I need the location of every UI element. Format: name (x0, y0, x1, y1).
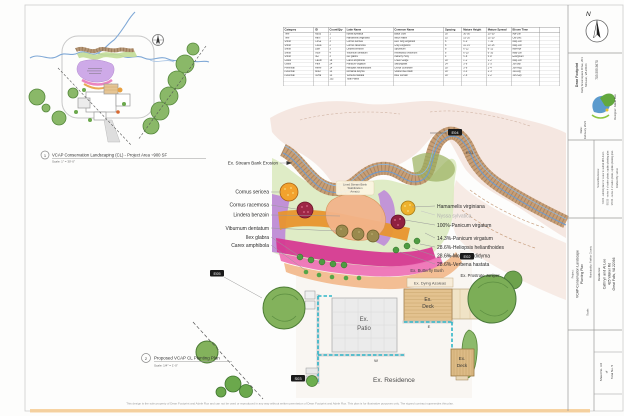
lower-deck-label-line1: Ex. (459, 356, 466, 361)
inset-house (78, 84, 130, 142)
upper-deck-label-line1: Ex. (424, 297, 431, 303)
residence-label: Ex. Residence (373, 377, 415, 384)
client-block: Residence: Cathryn and Al Lee 425 Walker… (597, 257, 616, 290)
north-label: N (586, 11, 591, 18)
company-address2: McLean, VA 22101 (584, 63, 588, 87)
patio-label-line2: Patio (357, 326, 371, 332)
sheet-number-block: Sheet No. 3.0 of Total No. 5 (599, 363, 614, 382)
project-block: Project: VCAP-Conservation Landscape Pla… (571, 245, 593, 316)
label-verbena: 28.6%-Verbena hastata (437, 262, 489, 268)
butterfly-bush-label: Ex. Butterfly Bush (410, 268, 444, 273)
label-ilex-glabra: Ilex glabra (246, 235, 269, 241)
north-arrow-icon: N (586, 11, 608, 42)
project-name-line2: Planting Plan (580, 264, 584, 284)
drafted-by: Drafted By: will.st (615, 168, 619, 188)
label-cornus-racemosa: Cornus racemosa (230, 203, 270, 209)
shrub-symbol-yellow (401, 201, 415, 215)
main-caption-scale: Scale: 1/4" = 1'-0" (154, 364, 178, 368)
inset-north-icon (153, 35, 164, 46)
inset-caption-number: 1 (44, 153, 47, 158)
plant-schedule: CategoryIDCount/QtyLatin NameCommon Name… (283, 27, 560, 86)
inset-caption: 1 VCAP Conservation Landscaping (CL) - P… (41, 151, 206, 164)
label-carex-amphibola: Carex amphibola (231, 243, 269, 249)
sheet-number-line1: Sheet No. 3.0 (599, 363, 603, 382)
inset-plan: 1 VCAP Conservation Landscaping (CL) - P… (29, 12, 209, 164)
inset-planting-area (76, 49, 136, 89)
schedule-cell (539, 85, 559, 86)
existing-trees (196, 287, 305, 398)
label-hamamelis: Hamamelis virginiana (437, 204, 485, 210)
company-logo-icon (592, 94, 615, 119)
shrub-symbol-orange (280, 183, 298, 201)
tag-e03: E03 (466, 150, 474, 155)
wall-letter-e: E (428, 324, 431, 329)
label-cornus-sericea: Cornus sericea (235, 190, 269, 196)
label-lindera-benzoin: Lindera benzoin (233, 213, 269, 219)
patio-label-line1: Ex. (360, 317, 369, 323)
tag-e05: E05 (213, 271, 221, 276)
dying-azaleas-label: Ex. Dying Azaleas (414, 281, 446, 286)
schedule-cell (462, 85, 487, 86)
inset-caption-title: VCAP Conservation Landscaping (CL) - Pro… (52, 153, 167, 158)
plant-labels-left: Ex. Stream Bank Erosion Cornus sericea C… (225, 161, 278, 250)
lower-deck: Ex. Deck (451, 349, 474, 380)
schedule-cell (328, 85, 345, 86)
project-heading: Project: (571, 269, 575, 278)
footer-disclaimer: This design is the sole property of Dean… (126, 402, 454, 406)
upper-deck-label-line2: Deck (422, 304, 434, 310)
revisions-block: Notes/Revisions: 7/2/20 - submit plans f… (596, 150, 619, 205)
project-municipality: Municipality: Fairfax County (589, 245, 593, 278)
main-caption-number: 2 (145, 356, 148, 361)
schedule-cell (487, 85, 512, 86)
shrub-symbol-maroon-2 (391, 215, 405, 229)
label-nyssa: Nyssa sylvatica (437, 214, 472, 220)
schedule-cell (444, 85, 462, 86)
project-scale-label: Scale: (586, 308, 590, 316)
drawing-sheet: 1 VCAP Conservation Landscaping (CL) - P… (0, 0, 624, 416)
schedule-cell (314, 85, 328, 86)
tag-s03: S03 (294, 376, 302, 381)
sheet-number-line3: Total No. 5 (610, 364, 614, 379)
schedule-cell (393, 85, 444, 86)
project-name-line1: VCAP-Conservation Landscape (576, 250, 580, 298)
patio: Ex. Patio (332, 298, 397, 352)
company-name: Dean Footprint (575, 62, 579, 87)
label-heliopsis: 28.6%-Heliopsis helianthoides (437, 245, 504, 251)
tag-e02: E02 (463, 254, 471, 259)
revision-item-1: 7/2/20 - submit plans for owner to submi… (602, 152, 605, 205)
title-block: N Dean Footprint Kelly Greenspace Drive,… (568, 5, 622, 411)
plant-schedule-table: CategoryIDCount/QtyLatin NameCommon Name… (283, 27, 560, 86)
revision-item-3: 9/5/20 - revise # of native plants, upda… (611, 150, 614, 205)
client-address1: 425 Walker Rd (608, 263, 612, 285)
schedule-cell (511, 85, 539, 86)
company-block: Dean Footprint Kelly Greenspace Drive, 2… (575, 57, 617, 139)
company-designer: Designer: Adele Rux (613, 94, 617, 120)
client-heading: Residence: (597, 267, 601, 281)
inset-caption-scale: Scale: 1" = 30'-0" (52, 160, 75, 164)
stream-note-line3: Area(s) (350, 190, 359, 194)
revision-item-2: 8/5/20 - revise # of native plants, upda… (607, 150, 610, 205)
client-address2: Great Falls, VA 22066 (612, 257, 616, 290)
label-panicum-14: 14.3%-Panicum virgatum (437, 236, 493, 242)
client-name: Cathryn and Al Lee (603, 259, 607, 290)
label-viburnum-dentatum: Viburnum dentatum (225, 226, 269, 232)
schedule-row (283, 85, 560, 86)
label-stream-bank-erosion: Ex. Stream Bank Erosion (228, 161, 279, 166)
stream-note: Lined Stream Bank Stabilization Area(s) (336, 181, 374, 195)
label-panicum-100: 100%-Panicum virgatum (437, 223, 491, 229)
main-caption-title: Proposed VCAP CL Planting Plan (154, 356, 220, 361)
tag-e04: E04 (451, 130, 459, 135)
lower-deck-label-line2: Deck (457, 363, 468, 368)
prostrate-juniper-label: Ex. Prostrate Juniper (460, 273, 500, 278)
wall-letter-w: W (374, 358, 378, 363)
company-date: February 2021 (583, 120, 587, 139)
revisions-heading: Notes/Revisions: (596, 168, 600, 188)
foundation-shrub (307, 376, 318, 387)
schedule-cell (283, 85, 314, 86)
schedule-cell (345, 85, 393, 86)
main-caption: 2 Proposed VCAP CL Planting Plan Scale: … (142, 354, 233, 368)
main-plan: Lined Stream Bank Stabilization Area(s) … (142, 101, 567, 399)
sheet-number-line2: of (605, 371, 609, 374)
company-phone: 703.555.5670 (595, 60, 599, 80)
